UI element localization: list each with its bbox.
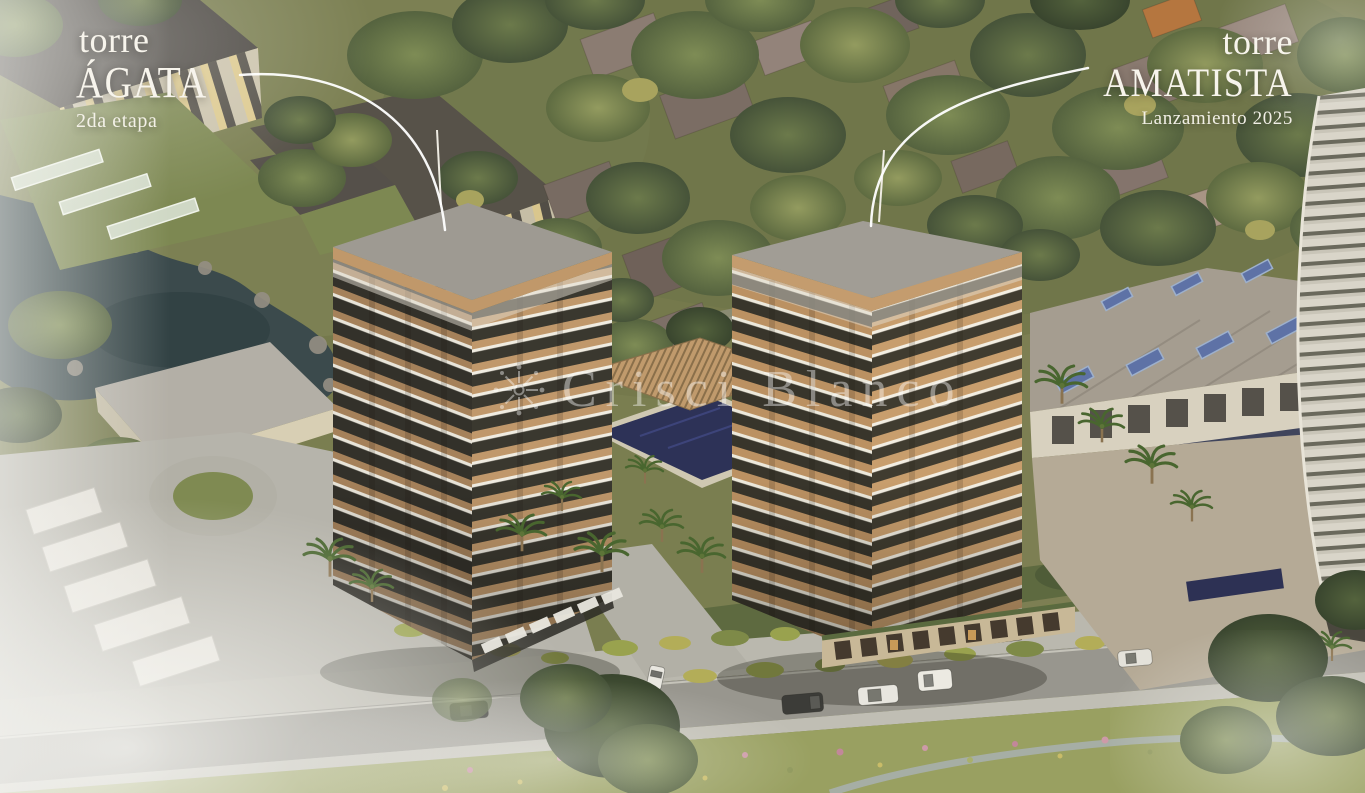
tower-amatista-label: torre AMATISTA Lanzamiento 2025 [1082, 24, 1293, 128]
tower-amatista-label-name: AMATISTA [1103, 63, 1293, 103]
tower-amatista-label-sub: Lanzamiento 2025 [1082, 109, 1293, 128]
tower-agata-label-pre: torre [79, 22, 229, 58]
car-white-distant [1117, 649, 1152, 668]
roundabout-green [173, 472, 253, 520]
car-white-suv [857, 684, 898, 705]
car-dark-van [781, 692, 823, 715]
tower-agata-label-name: ÁGATA [76, 61, 208, 105]
car-white-van [917, 669, 953, 692]
tower-amatista-label-pre: torre [1082, 24, 1293, 60]
tower-agata-label: torre ÁGATA 2da etapa [76, 22, 229, 131]
aerial-render-canvas: torre ÁGATA 2da etapa torre AMATISTA Lan… [0, 0, 1365, 793]
tower-agata-label-sub: 2da etapa [76, 111, 229, 131]
